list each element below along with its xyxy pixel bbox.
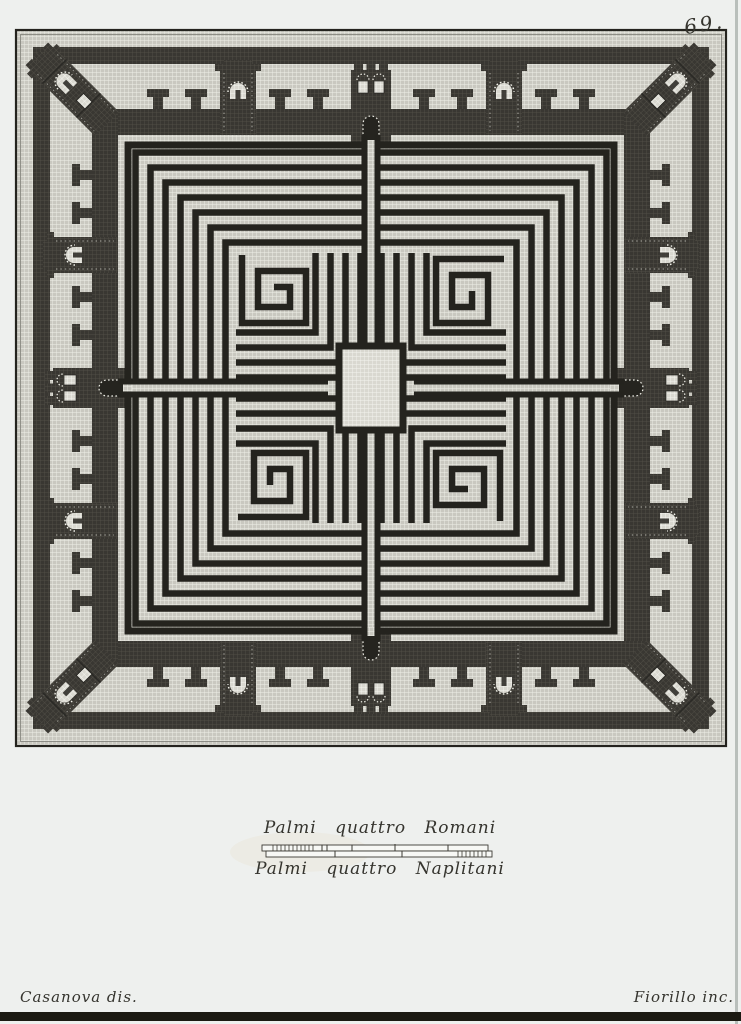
scale-bar <box>262 844 492 858</box>
central-chamber <box>339 346 403 430</box>
scanned-engraving-page: 69. Palmi quattro Romani Palmi quattro N… <box>0 0 741 1024</box>
signature-delineator: Casanova dis. <box>20 988 138 1006</box>
scale-bar-roman <box>262 845 488 851</box>
scale-caption-roman: Palmi quattro Romani <box>170 818 590 838</box>
signature-engraver: Fiorillo inc. <box>420 988 734 1006</box>
bottom-scan-band <box>0 1012 741 1021</box>
scale-caption-neapolitan: Palmi quattro Naplitani <box>170 859 590 879</box>
page-edge-line <box>735 0 738 1024</box>
